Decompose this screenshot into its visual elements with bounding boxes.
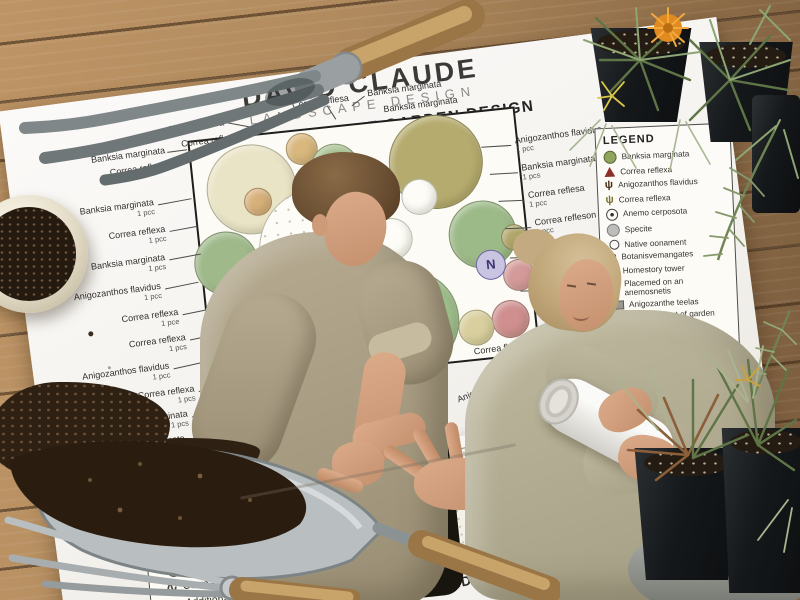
plant-label-qty: 1 pcs <box>65 343 187 367</box>
label-leader-line <box>165 282 199 290</box>
woman-smile <box>573 311 589 321</box>
hand-cultivator <box>0 470 360 600</box>
label-leader-line <box>170 226 198 232</box>
native-plant-foliage <box>598 340 800 570</box>
man-ear <box>312 214 328 236</box>
garden-design-photo-scene: DAVID CLAUDE LANDSCAPE DESIGN MELBOURNE … <box>0 0 800 600</box>
garden-fork <box>0 0 500 210</box>
bowl-soil <box>0 207 76 301</box>
